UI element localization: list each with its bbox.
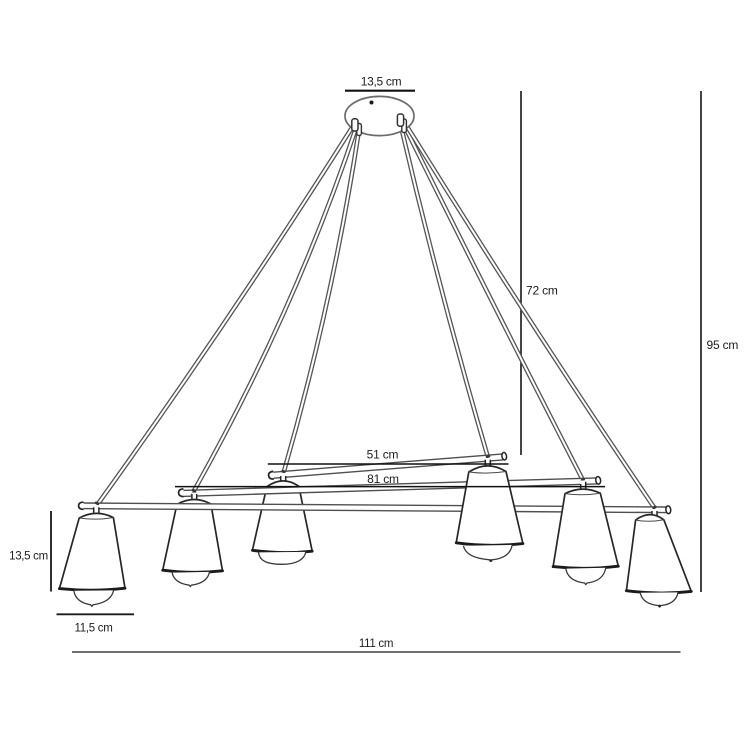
svg-text:51 cm: 51 cm (367, 448, 399, 462)
svg-text:13,5 cm: 13,5 cm (361, 75, 402, 89)
svg-text:11,5 cm: 11,5 cm (75, 623, 113, 635)
svg-text:72 cm: 72 cm (526, 284, 558, 298)
svg-text:111 cm: 111 cm (359, 638, 393, 650)
svg-text:95 cm: 95 cm (707, 338, 739, 352)
svg-text:13,5 cm: 13,5 cm (9, 551, 48, 563)
